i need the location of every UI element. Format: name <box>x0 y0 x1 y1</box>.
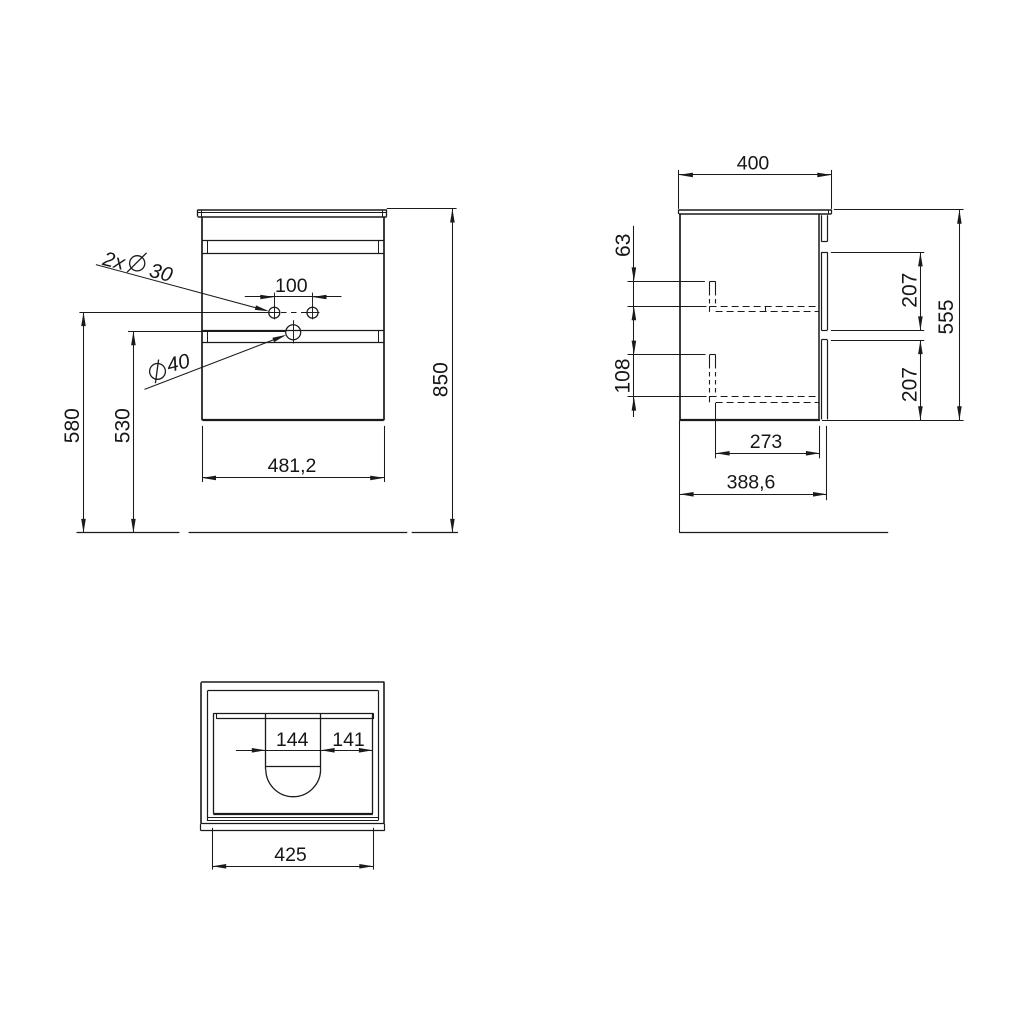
svg-text:63: 63 <box>612 234 635 257</box>
svg-text:207: 207 <box>899 367 922 402</box>
svg-text:2x: 2x <box>100 247 128 275</box>
svg-text:530: 530 <box>111 408 134 443</box>
svg-text:30: 30 <box>147 259 175 287</box>
svg-text:555: 555 <box>935 299 958 334</box>
svg-text:144: 144 <box>276 729 309 751</box>
svg-text:100: 100 <box>275 275 308 297</box>
svg-text:207: 207 <box>899 273 922 308</box>
svg-text:141: 141 <box>332 729 365 751</box>
svg-text:400: 400 <box>737 152 770 174</box>
svg-text:108: 108 <box>611 358 634 393</box>
svg-text:481,2: 481,2 <box>268 455 317 477</box>
svg-text:425: 425 <box>274 844 307 866</box>
svg-text:273: 273 <box>750 431 783 453</box>
svg-text:850: 850 <box>429 362 452 397</box>
svg-text:580: 580 <box>61 408 84 443</box>
svg-text:388,6: 388,6 <box>727 472 776 494</box>
